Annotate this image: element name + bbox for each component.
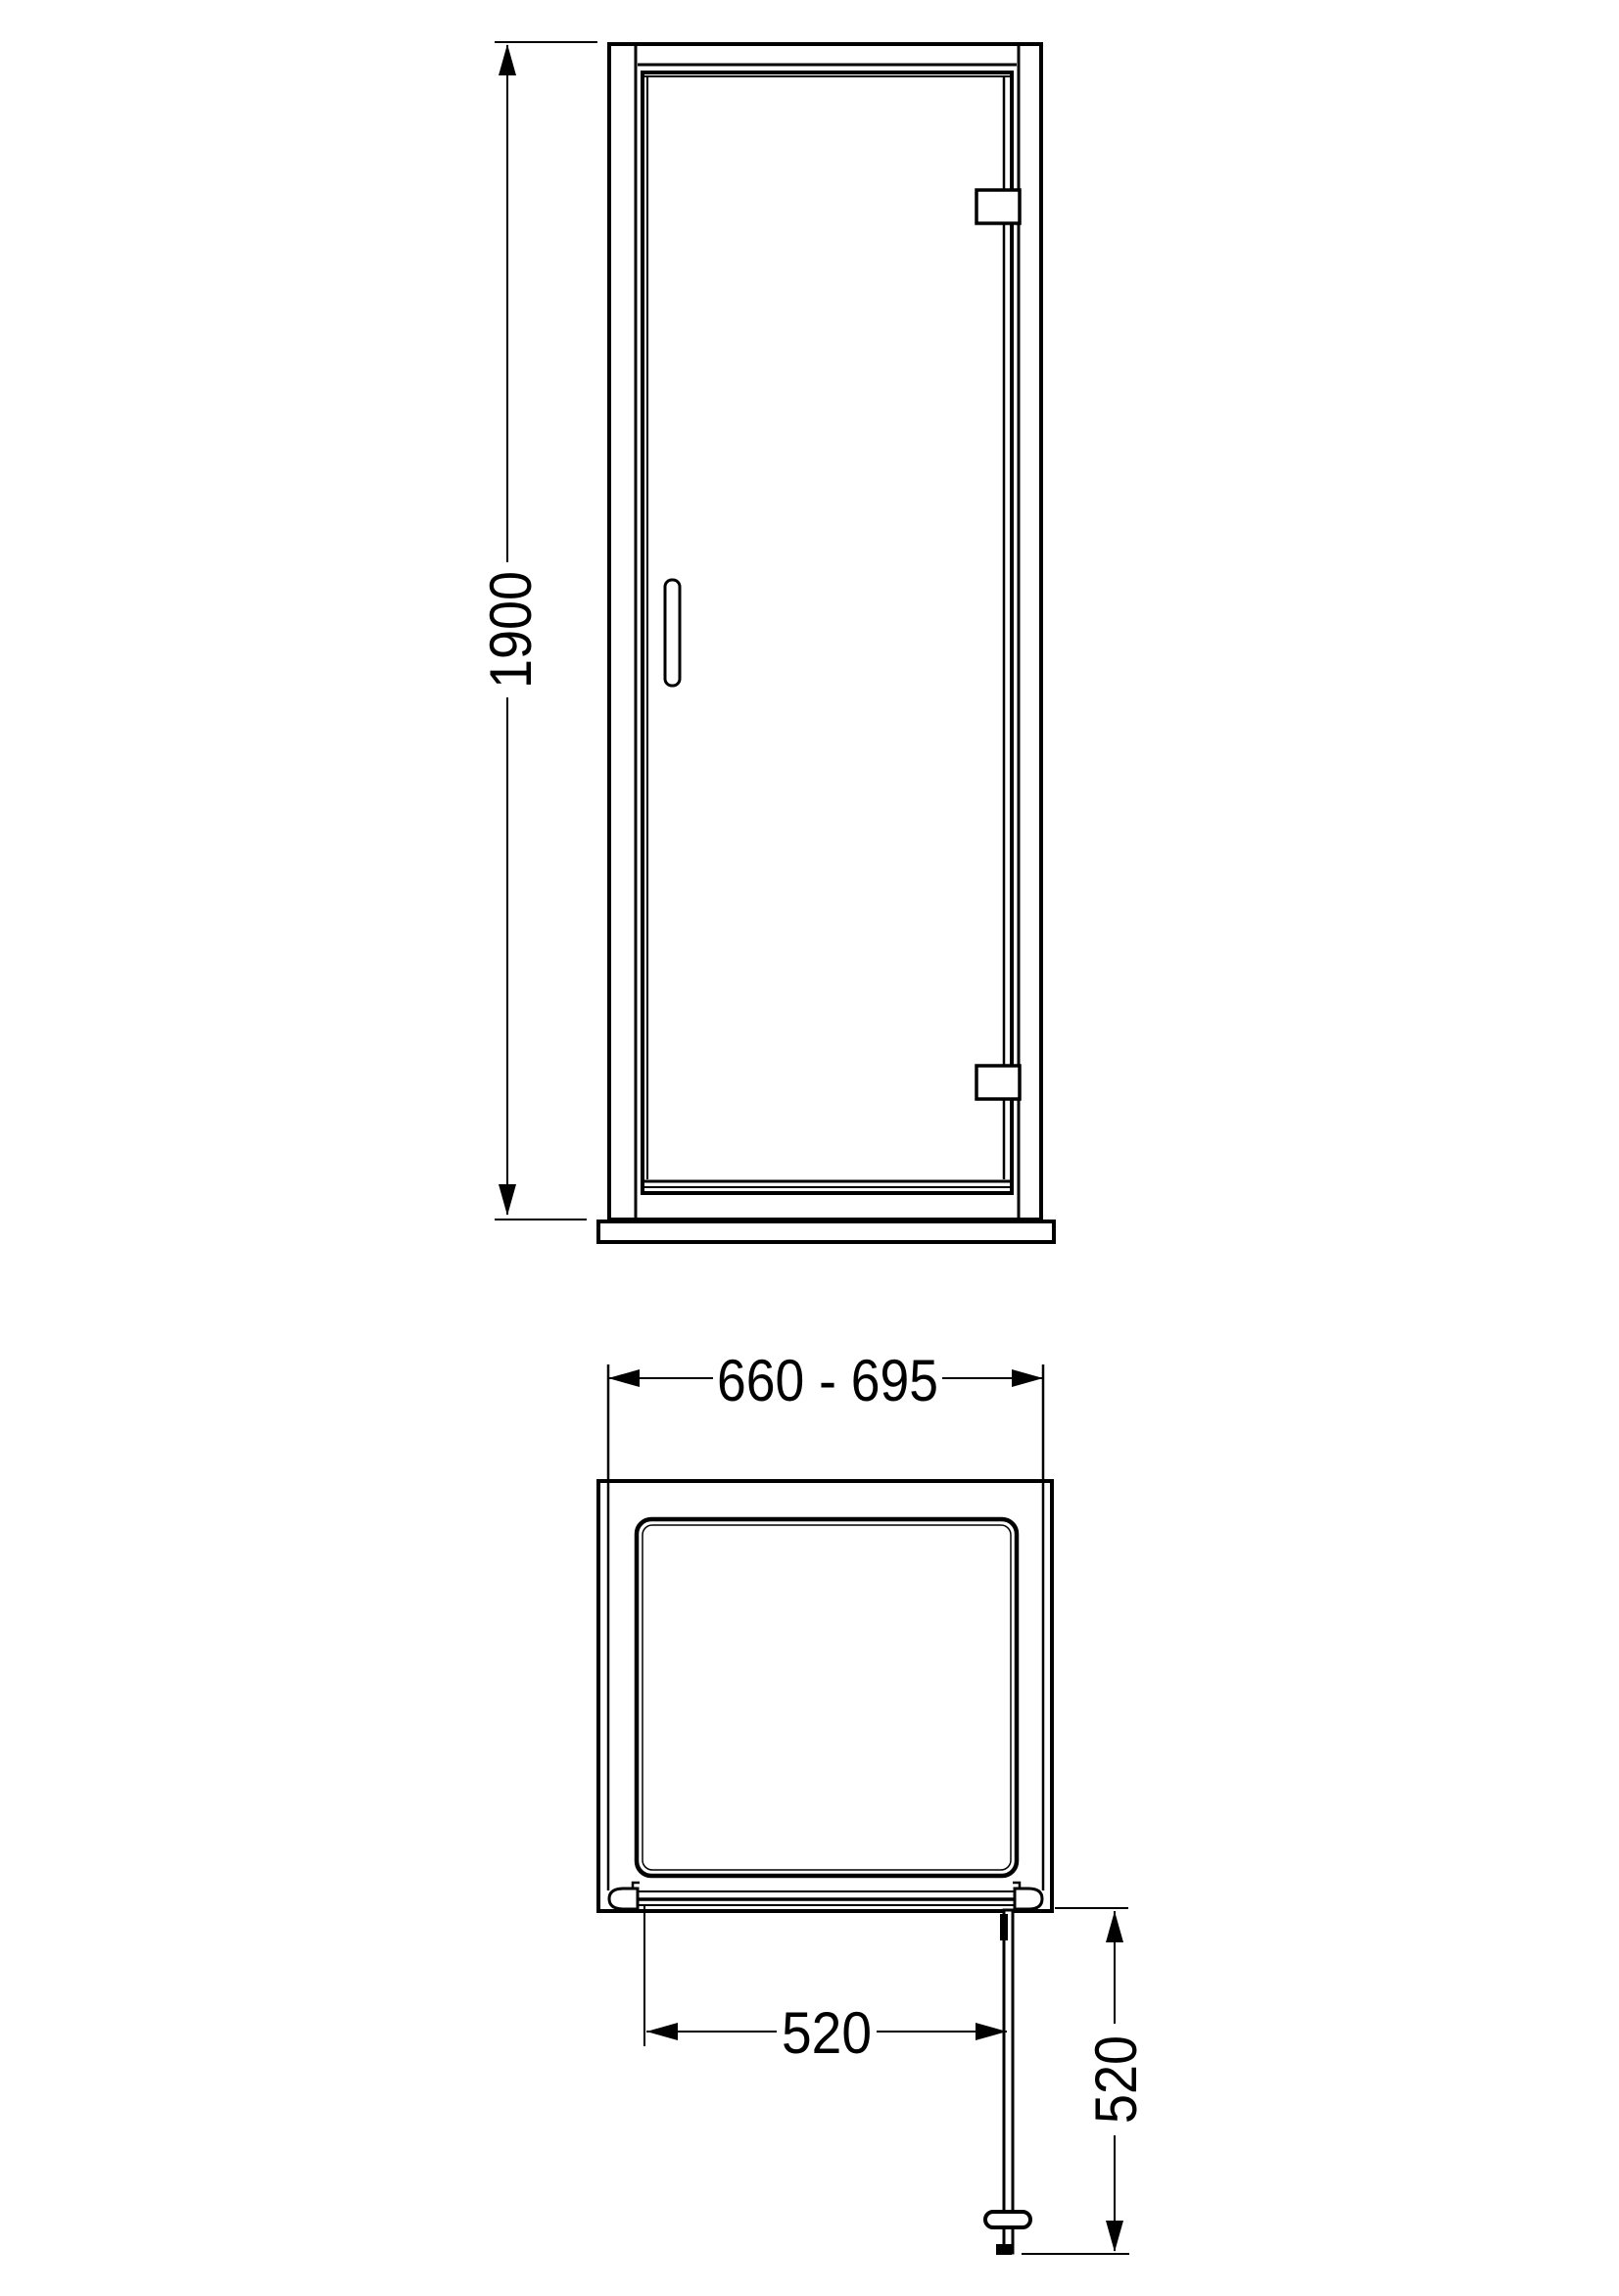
height-dimension-1900: 1900 xyxy=(478,42,597,1220)
opening-dim-arrow-left-icon xyxy=(646,2023,678,2040)
drawing-svg: 1900 660 - 695 xyxy=(0,0,1619,2291)
opening-dimension-520: 520 xyxy=(644,1904,1007,2066)
width-dimension-label: 660 - 695 xyxy=(717,1348,938,1413)
swing-dimension-label: 520 xyxy=(1083,2035,1149,2124)
width-dimension-660-695: 660 - 695 xyxy=(608,1348,1043,1413)
width-dim-arrow-right-icon xyxy=(1012,1369,1043,1387)
swing-dim-arrow-up-icon xyxy=(1106,1911,1123,1942)
plan-door-end-cap xyxy=(996,2244,1012,2255)
width-dim-arrow-left-icon xyxy=(608,1369,640,1387)
height-dimension-label: 1900 xyxy=(478,571,544,689)
swing-dimension-520: 520 xyxy=(1022,1908,1149,2254)
plan-door-handle xyxy=(985,2212,1030,2227)
bottom-hinge xyxy=(976,1066,1020,1099)
height-dim-arrow-up-icon xyxy=(499,44,516,75)
plan-enclosure-inner-wall xyxy=(637,1519,1017,1876)
plan-right-jamb-profile xyxy=(1015,1889,1042,1909)
door-glass-panel xyxy=(643,72,1012,1193)
plan-door-pivot-hinge xyxy=(1000,1914,1008,1940)
front-elevation-view xyxy=(598,44,1054,1242)
height-dim-arrow-down-icon xyxy=(499,1184,516,1216)
plan-left-jamb-profile xyxy=(609,1889,638,1909)
swing-dim-arrow-down-icon xyxy=(1106,2221,1123,2252)
opening-dim-arrow-right-icon xyxy=(976,2023,1007,2040)
shower-door-technical-drawing: 1900 660 - 695 xyxy=(0,0,1619,2291)
shower-tray xyxy=(598,1221,1054,1242)
plan-view xyxy=(598,1364,1052,1911)
door-handle-elevation xyxy=(665,580,680,686)
plan-open-door xyxy=(985,1910,1030,2255)
plan-open-door-leaf xyxy=(1004,1910,1013,2253)
opening-dimension-label: 520 xyxy=(782,2000,872,2066)
top-hinge xyxy=(976,190,1020,223)
